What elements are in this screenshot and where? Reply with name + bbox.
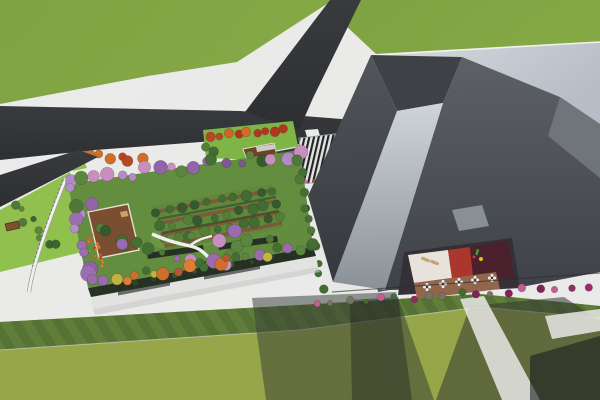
aerial-render [0,0,600,400]
light-overlay [0,0,600,400]
scene-canvas [0,0,600,400]
